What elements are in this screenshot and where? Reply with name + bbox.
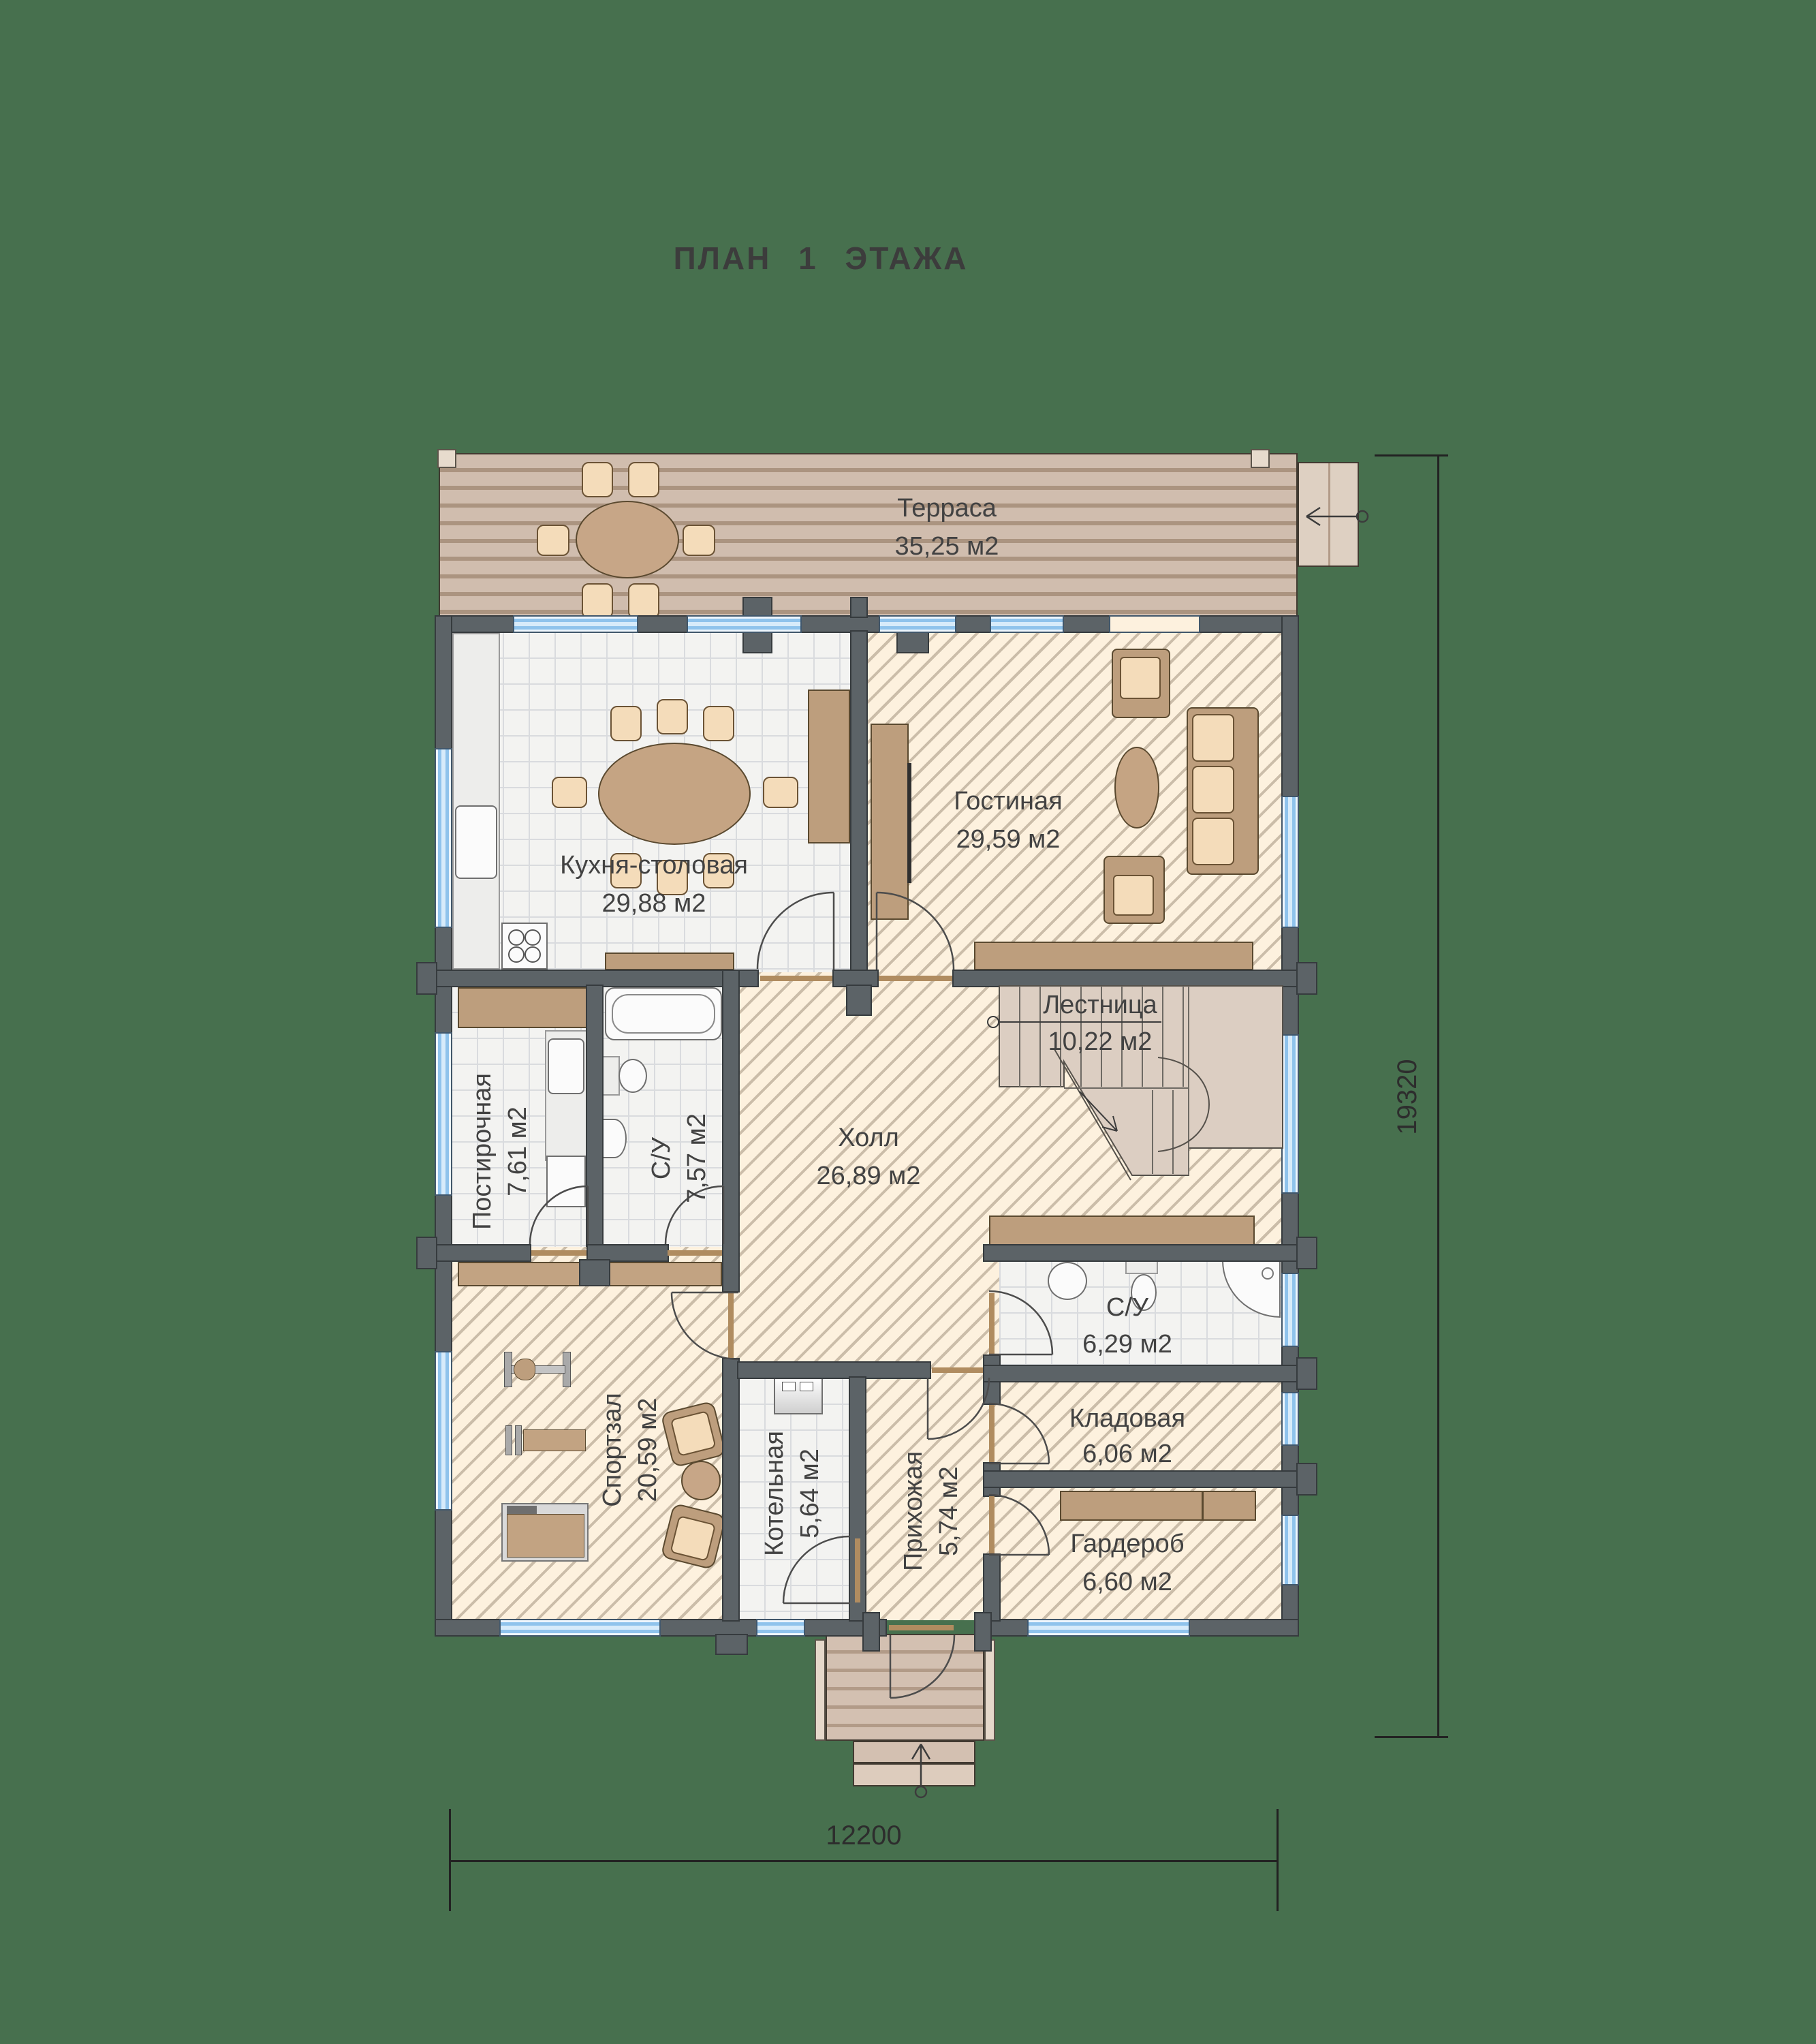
terrace-chair [683, 525, 715, 556]
wall-segment [850, 1378, 865, 1620]
room-area: 5,74 м2 [931, 1368, 967, 1654]
room-label-bathroom-2: С/У 6,29 м2 [995, 1289, 1260, 1363]
room-label-kitchen: Кухня-столовая 29,88 м2 [518, 846, 790, 923]
wall-segment [954, 971, 1298, 986]
treadmill [501, 1503, 589, 1562]
terrace-door-opening [1110, 617, 1199, 632]
laundry-sink [548, 1038, 584, 1094]
terrace-side-steps [1298, 462, 1359, 567]
wall-segment [984, 1472, 1298, 1487]
room-name: С/У [644, 1056, 679, 1260]
window [688, 617, 800, 632]
dimension-tick [1277, 1809, 1279, 1911]
dimension-tick [1375, 454, 1448, 456]
window [1283, 1036, 1298, 1192]
room-area: 7,61 м2 [500, 1002, 535, 1301]
wall-segment [851, 632, 866, 971]
room-name: С/У [995, 1289, 1260, 1326]
room-name: Гардероб [995, 1525, 1260, 1563]
wall-stub [418, 963, 436, 993]
porch-step [853, 1763, 975, 1786]
room-area: 6,60 м2 [995, 1563, 1260, 1601]
room-name: Кладовая [995, 1401, 1260, 1436]
room-name: Спортзал [595, 1293, 630, 1607]
bathtub [605, 987, 722, 1040]
room-name: Кухня-столовая [518, 846, 790, 884]
washing-machine [546, 1156, 586, 1207]
room-area: 35,25 м2 [811, 527, 1083, 566]
window [880, 617, 955, 632]
terrace-chair [582, 583, 613, 619]
room-label-hall: Холл 26,89 м2 [736, 1119, 1001, 1195]
room-label-laundry: Постирочная 7,61 м2 [465, 1002, 539, 1301]
room-area: 20,59 м2 [630, 1293, 666, 1607]
room-label-storage: Кладовая 6,06 м2 [995, 1401, 1260, 1472]
wall-stub [1298, 1238, 1316, 1268]
terrace-chair [582, 462, 613, 497]
window [436, 749, 451, 927]
toilet-bowl [619, 1059, 647, 1093]
wall-segment [984, 1245, 1298, 1260]
room-area: 26,89 м2 [736, 1157, 1001, 1195]
room-area: 6,29 м2 [995, 1326, 1260, 1363]
terrace-table [576, 501, 679, 578]
kitchen-cabinet [808, 690, 850, 843]
room-area: 7,57 м2 [679, 1056, 715, 1260]
room-area: 29,88 м2 [518, 884, 790, 923]
armchair [1103, 856, 1165, 924]
wall-stub [418, 1238, 436, 1268]
window [1283, 1516, 1298, 1584]
dimension-depth-value: 19320 [1392, 1015, 1430, 1179]
hall-closet [989, 1215, 1255, 1245]
window [501, 1620, 659, 1635]
room-label-entry: Прихожая 5,74 м2 [896, 1368, 971, 1654]
wall-stub [717, 1635, 747, 1654]
kitchen-counter [452, 633, 500, 970]
terrace-corner-post [437, 449, 456, 468]
page-title: ПЛАН 1 ЭТАЖА [572, 240, 1069, 277]
gym-table [681, 1461, 721, 1500]
window [1029, 1620, 1189, 1635]
exercise-bench [505, 1425, 584, 1454]
window [514, 617, 637, 632]
toilet-tank [1125, 1260, 1158, 1274]
window [1283, 1274, 1298, 1346]
room-name: Холл [736, 1119, 1001, 1157]
dining-chair [657, 699, 688, 734]
wall-segment [984, 1366, 1298, 1381]
dimension-tick [1375, 1736, 1448, 1738]
wall-segment [723, 1359, 738, 1620]
armchair [1112, 649, 1170, 718]
dimension-line-vertical [1437, 455, 1439, 1737]
kitchen-lower-cabinet [605, 953, 734, 970]
toilet-tank [602, 1056, 620, 1096]
wardrobe-closet [1060, 1491, 1256, 1521]
stove [501, 923, 548, 970]
room-name: Прихожая [896, 1368, 931, 1654]
wall-stub [744, 632, 771, 652]
room-area: 29,59 м2 [872, 820, 1144, 858]
room-area: 6,06 м2 [995, 1436, 1260, 1472]
wall-segment [834, 971, 877, 986]
living-sideboard [974, 942, 1253, 970]
porch-step [853, 1741, 975, 1763]
terrace-chair [628, 583, 659, 619]
room-label-boiler: Котельная 5,64 м2 [757, 1350, 832, 1637]
kitchen-sink [455, 805, 497, 879]
window [1283, 1393, 1298, 1444]
room-name: Постирочная [465, 1002, 500, 1301]
room-name: Котельная [757, 1350, 792, 1637]
room-name: Гостиная [872, 782, 1144, 820]
room-label-bathroom-1: С/У 7,57 м2 [644, 1056, 719, 1260]
wall-stub [1298, 963, 1316, 993]
room-label-living: Гостиная 29,59 м2 [872, 782, 1144, 858]
terrace-chair [537, 525, 569, 556]
dining-chair [610, 706, 642, 741]
dimension-line-horizontal [450, 1860, 1278, 1862]
wall-stub [864, 1613, 879, 1650]
wall-stub [744, 598, 771, 617]
wall-stub [851, 598, 866, 617]
floor-plan-page: { "title": "ПЛАН 1 ЭТАЖА", "rooms": { "t… [0, 0, 1816, 2044]
dining-table [598, 743, 751, 845]
wall-segment [587, 986, 602, 1245]
porch-rail [815, 1639, 826, 1741]
wall-stub [580, 1260, 609, 1285]
window [991, 617, 1063, 632]
window [436, 1034, 451, 1194]
wall-stub [847, 986, 871, 1015]
terrace-chair [628, 462, 659, 497]
terrace-corner-post [1251, 449, 1270, 468]
dimension-tick [449, 1809, 451, 1911]
window [1283, 797, 1298, 927]
room-area: 5,64 м2 [792, 1350, 828, 1637]
dining-chair [552, 777, 587, 808]
wall-stub [1298, 1464, 1316, 1494]
dining-chair [703, 706, 734, 741]
room-name: Терраса [811, 489, 1083, 527]
window [436, 1352, 451, 1509]
room-label-wardrobe: Гардероб 6,60 м2 [995, 1525, 1260, 1601]
wall-stub [1298, 1359, 1316, 1389]
room-name: Лестница [974, 987, 1226, 1023]
room-area: 10,22 м2 [974, 1023, 1226, 1060]
room-label-stairs: Лестница 10,22 м2 [974, 987, 1226, 1060]
wall-stub [975, 1613, 990, 1650]
sofa [1187, 707, 1259, 875]
room-label-gym: Спортзал 20,59 м2 [595, 1293, 670, 1607]
dimension-width-value: 12200 [762, 1821, 966, 1851]
wash-basin [602, 1119, 627, 1158]
porch-rail [984, 1639, 995, 1741]
wall-segment [436, 971, 757, 986]
weight-machine [504, 1352, 571, 1386]
wall-stub [898, 632, 928, 652]
dining-chair [763, 777, 798, 808]
room-label-terrace: Терраса 35,25 м2 [811, 489, 1083, 566]
